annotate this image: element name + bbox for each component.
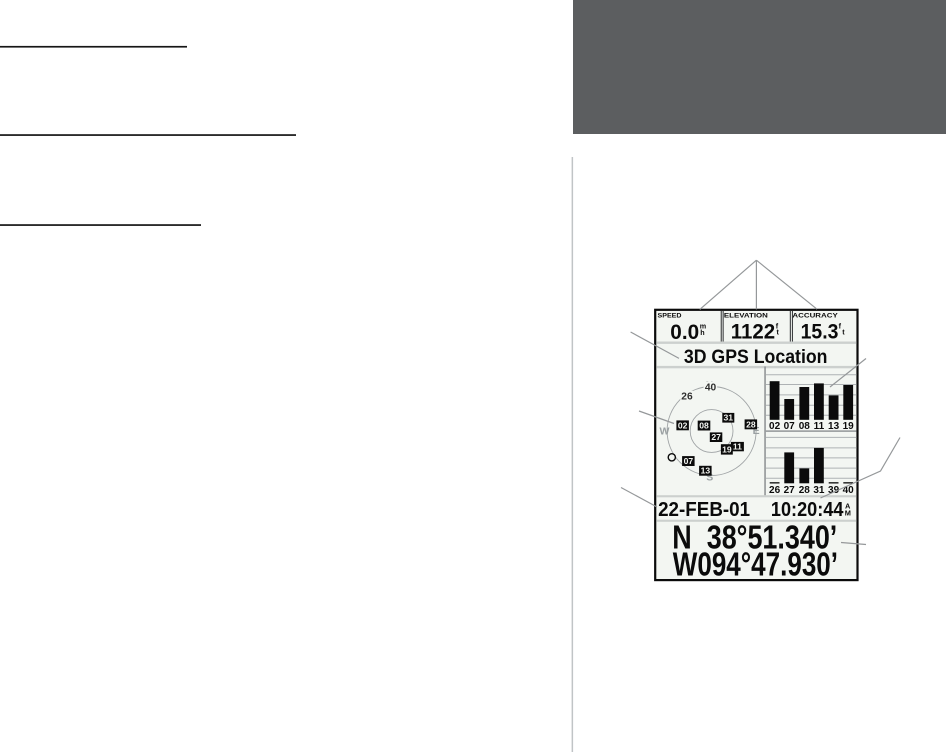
svg-text:SPEED: SPEED (658, 313, 682, 320)
svg-text:W094°47.930’: W094°47.930’ (673, 547, 838, 584)
svg-text:40: 40 (705, 383, 717, 394)
svg-text:26: 26 (681, 392, 693, 403)
svg-text:27: 27 (711, 432, 721, 442)
svg-text:3D GPS Location: 3D GPS Location (684, 346, 828, 368)
svg-text:28: 28 (799, 485, 811, 496)
svg-text:M: M (845, 509, 851, 518)
svg-text:07: 07 (684, 456, 694, 466)
svg-text:13: 13 (701, 466, 711, 476)
svg-text:ELEVATION: ELEVATION (724, 313, 768, 320)
svg-text:15.3: 15.3 (801, 320, 839, 344)
svg-text:31: 31 (724, 413, 734, 423)
svg-text:27: 27 (784, 485, 796, 496)
svg-text:1122: 1122 (731, 320, 775, 344)
svg-text:19: 19 (843, 421, 855, 432)
svg-text:07: 07 (784, 421, 796, 432)
svg-text:0.0: 0.0 (670, 320, 699, 344)
svg-text:02: 02 (678, 420, 688, 430)
svg-text:28: 28 (746, 419, 756, 429)
svg-text:08: 08 (699, 421, 709, 431)
svg-text:10:20:44: 10:20:44 (771, 499, 844, 521)
svg-text:h: h (700, 328, 704, 337)
svg-text:02: 02 (769, 421, 781, 432)
svg-text:22-FEB-01: 22-FEB-01 (658, 499, 750, 521)
svg-text:26: 26 (769, 485, 781, 496)
svg-text:11: 11 (814, 421, 825, 432)
svg-text:19: 19 (722, 445, 732, 455)
svg-text:11: 11 (733, 442, 742, 452)
svg-text:13: 13 (828, 421, 840, 432)
svg-text:W: W (660, 426, 670, 438)
svg-text:31: 31 (813, 485, 825, 496)
svg-text:08: 08 (799, 421, 811, 432)
